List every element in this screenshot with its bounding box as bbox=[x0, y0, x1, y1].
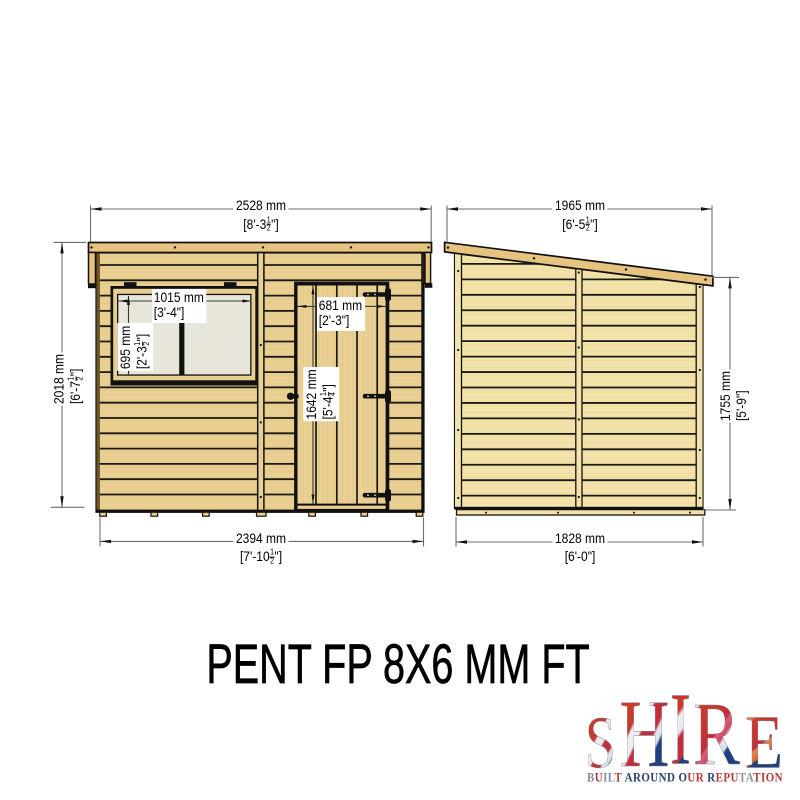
svg-text:R: R bbox=[693, 685, 740, 784]
svg-text:I: I bbox=[670, 671, 691, 786]
svg-text:BUILT AROUND OUR REPUTATION: BUILT AROUND OUR REPUTATION bbox=[587, 771, 783, 785]
